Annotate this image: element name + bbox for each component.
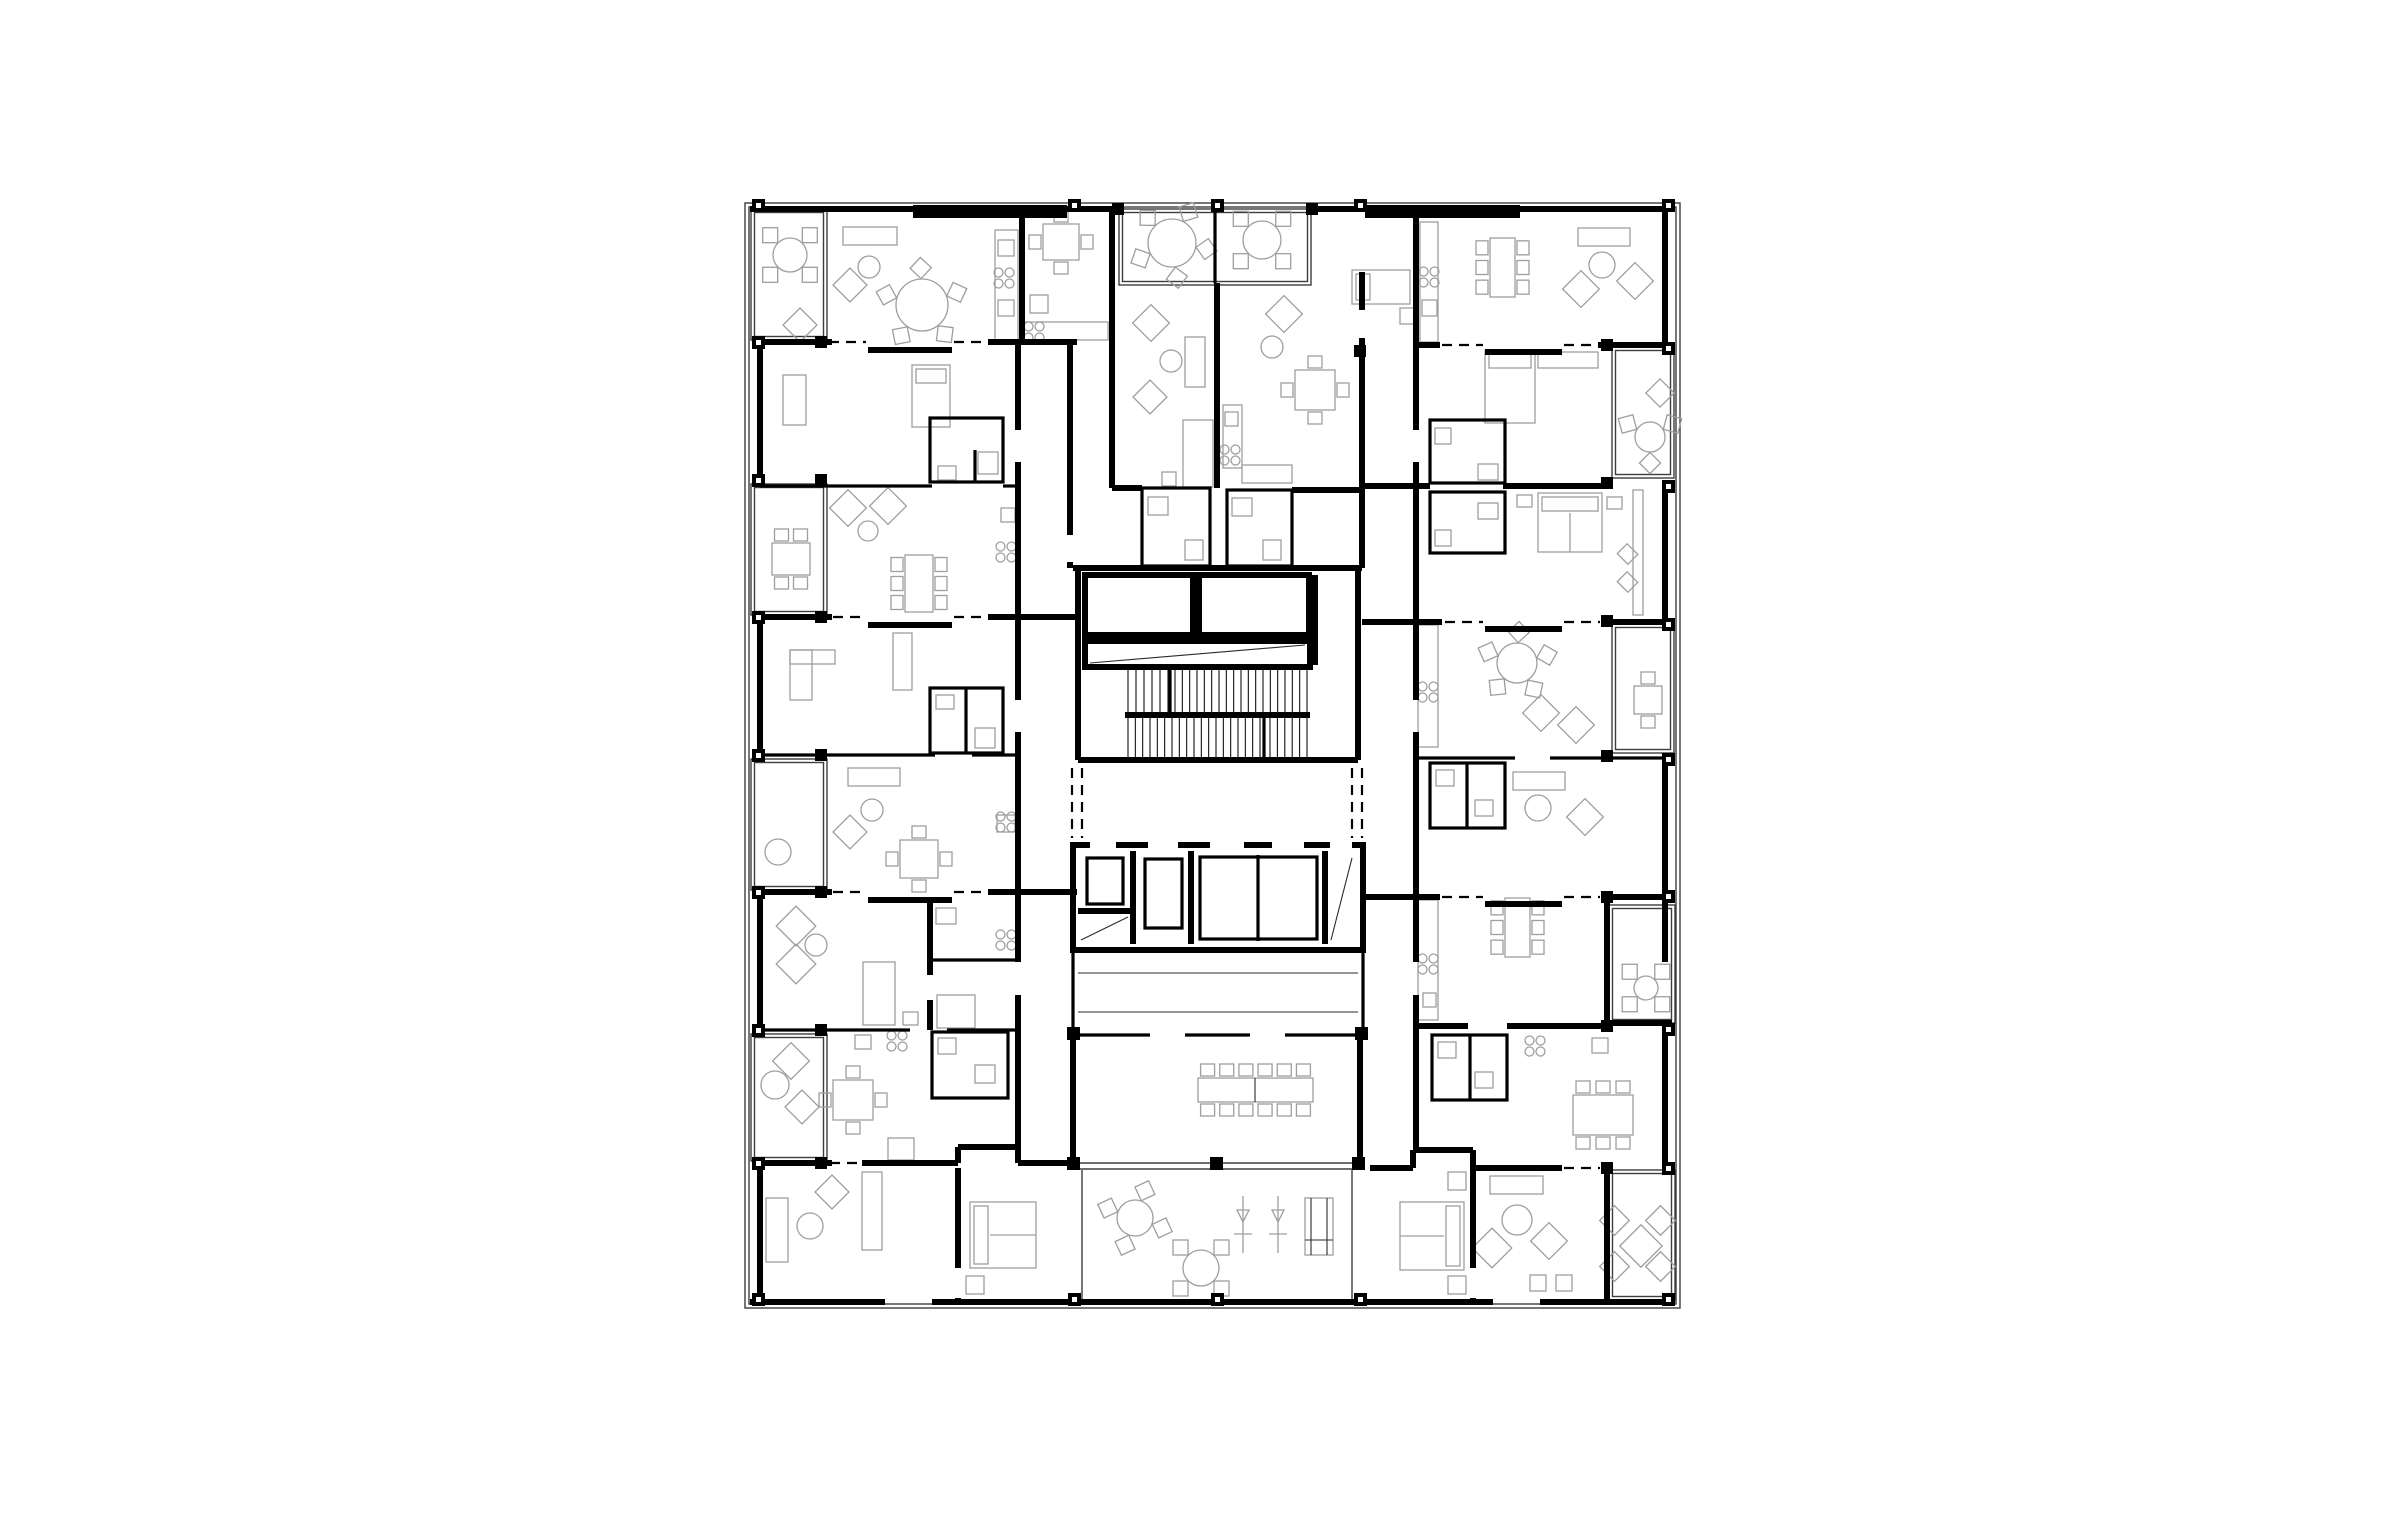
floor-plan-drawing [0,0,2400,1519]
floor-plan-page [0,0,2400,1519]
furniture-layer [761,203,1682,1296]
perimeter-columns [752,199,1675,1306]
interior-walls-medium [760,209,1665,1100]
